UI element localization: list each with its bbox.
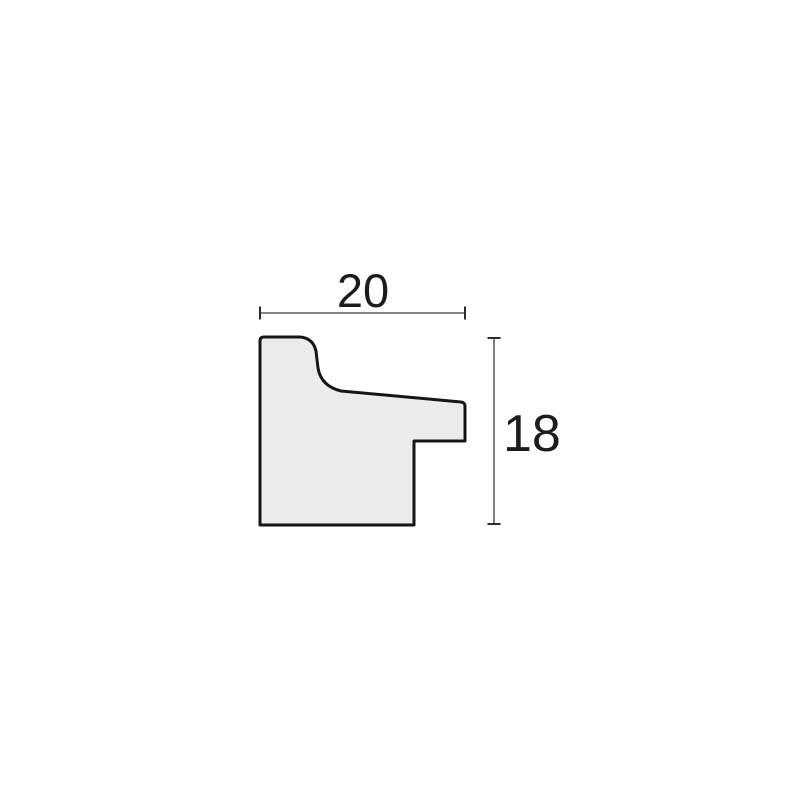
moulding-profile-shape [260, 337, 465, 525]
height-dimension: 18 [488, 338, 561, 524]
width-dimension: 20 [260, 264, 465, 320]
width-dimension-label: 20 [337, 264, 389, 317]
height-dimension-label: 18 [503, 405, 561, 463]
technical-drawing-canvas: 20 18 [0, 0, 800, 800]
moulding-profile-diagram: 20 18 [0, 0, 800, 800]
